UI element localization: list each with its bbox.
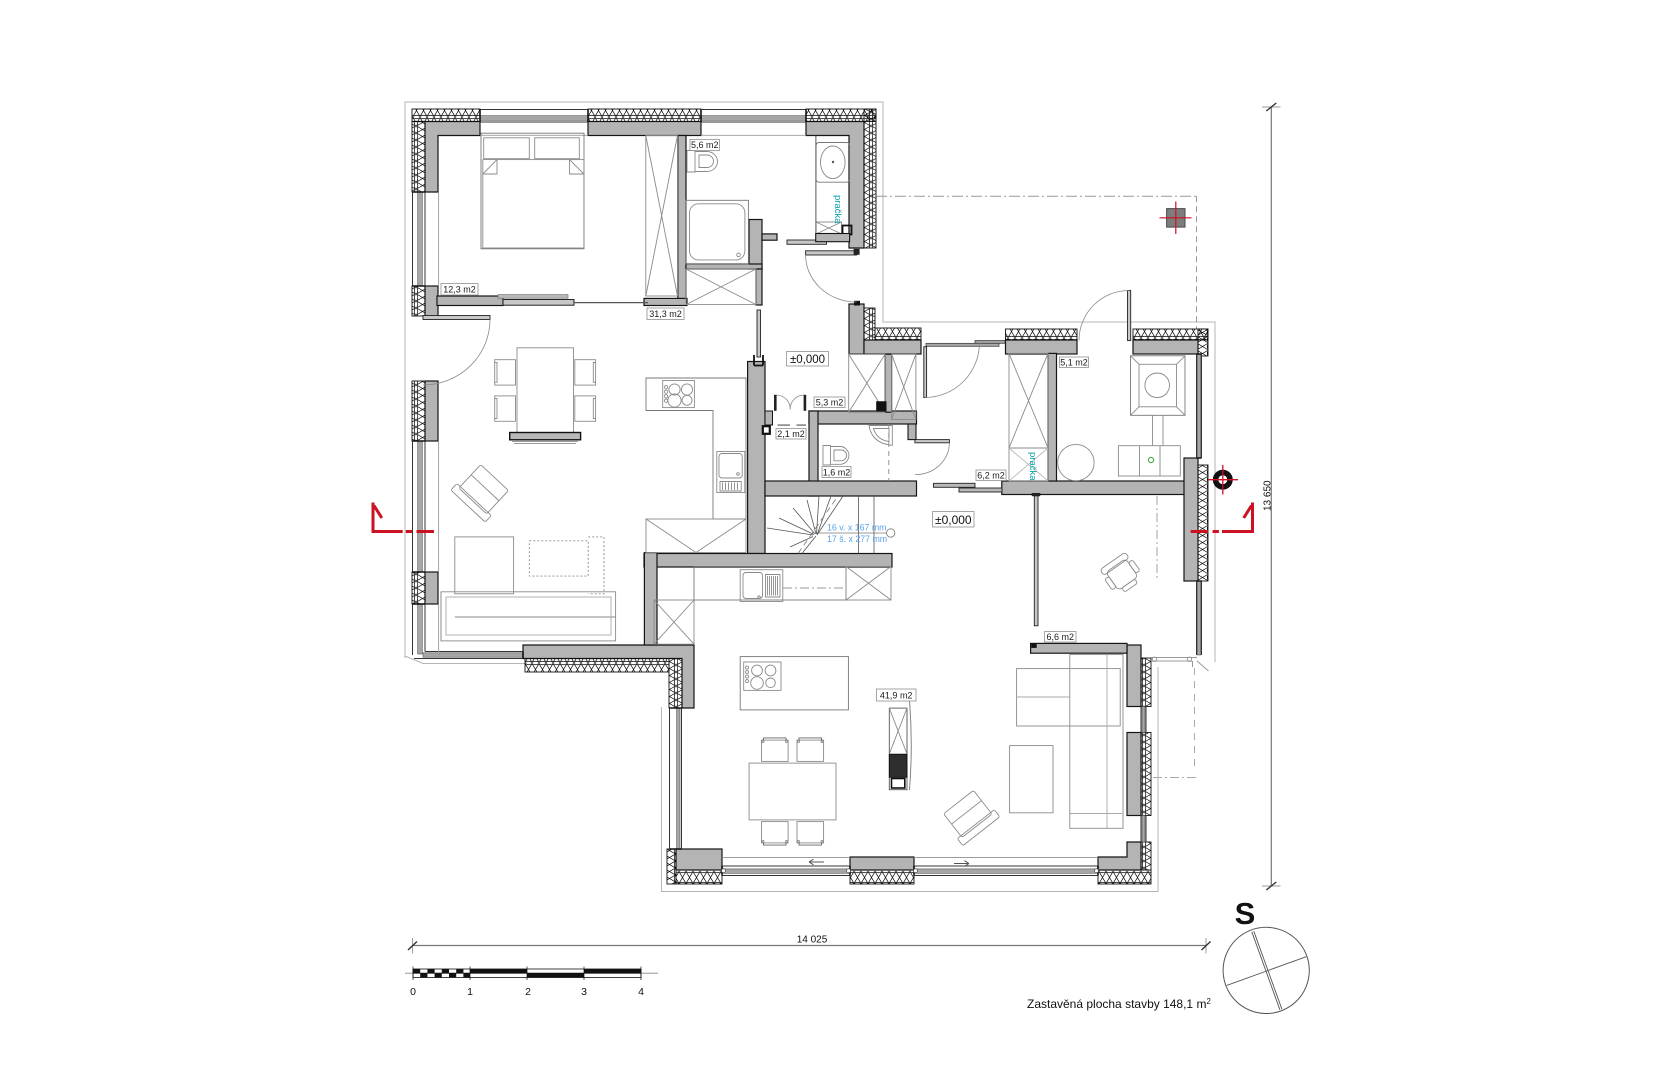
svg-text:6,2 m2: 6,2 m2 [977, 470, 1005, 480]
svg-text:5,1 m2: 5,1 m2 [1060, 357, 1088, 367]
svg-text:1,6 m2: 1,6 m2 [823, 467, 851, 477]
svg-text:2: 2 [525, 986, 531, 998]
svg-text:2,1 m2: 2,1 m2 [777, 429, 805, 439]
svg-text:14 025: 14 025 [797, 935, 828, 946]
svg-text:12,3 m2: 12,3 m2 [443, 285, 476, 295]
svg-text:3: 3 [581, 986, 587, 998]
svg-text:41,9 m2: 41,9 m2 [880, 690, 913, 700]
svg-text:5,3 m2: 5,3 m2 [816, 397, 844, 407]
svg-text:±0,000: ±0,000 [935, 513, 972, 527]
svg-text:6,6 m2: 6,6 m2 [1046, 632, 1074, 642]
svg-text:17 š. x 277 mm: 17 š. x 277 mm [827, 534, 887, 544]
svg-text:±0,000: ±0,000 [790, 354, 825, 366]
svg-text:13 650: 13 650 [1263, 480, 1274, 511]
svg-text:0: 0 [410, 986, 416, 998]
svg-text:Zastavěná plocha stavby 148,1: Zastavěná plocha stavby 148,1 m2 [1027, 997, 1211, 1011]
svg-text:S: S [1235, 896, 1256, 931]
svg-text:4: 4 [638, 986, 644, 998]
svg-text:5,6 m2: 5,6 m2 [691, 140, 719, 150]
svg-text:1: 1 [467, 986, 473, 998]
svg-text:pračka: pračka [832, 195, 843, 224]
svg-text:pračka: pračka [1027, 452, 1038, 481]
svg-text:16 v. x 167 mm: 16 v. x 167 mm [827, 523, 886, 533]
svg-text:31,3 m2: 31,3 m2 [649, 309, 682, 319]
